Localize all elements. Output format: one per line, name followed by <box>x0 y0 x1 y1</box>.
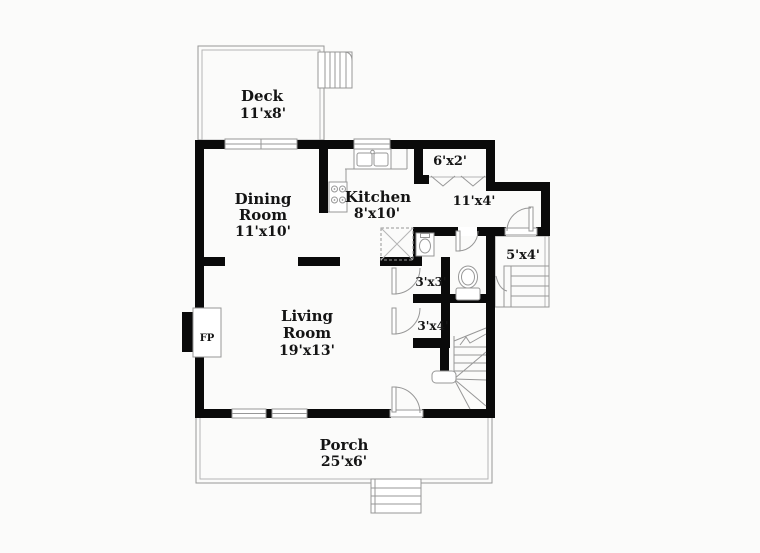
wall-right-lower <box>486 227 495 418</box>
closet-b-door-leaf <box>392 308 396 334</box>
pantry-closet-label: 6'x2' <box>433 154 467 169</box>
svg-text:3'x3': 3'x3' <box>415 275 446 289</box>
wall-hall-top-jog <box>486 182 550 191</box>
bathroom-door-leaf <box>456 231 460 251</box>
window-living-1 <box>232 409 266 418</box>
porch-label: Porch <box>320 436 369 454</box>
svg-text:8'x10': 8'x10' <box>354 206 400 222</box>
window-kitchen <box>354 139 390 149</box>
closet-a-door-leaf <box>392 268 396 294</box>
deck-label: Deck <box>241 87 284 105</box>
floor-plan: Deck 11'x8' Porch 25'x6' 5'x4' <box>0 0 760 553</box>
svg-text:Kitchen: Kitchen <box>345 188 411 206</box>
stoop-dims: 5'x4' <box>506 248 540 263</box>
porch-steps <box>371 479 421 513</box>
svg-text:11'x4': 11'x4' <box>453 194 496 209</box>
wall-divider-left <box>195 257 225 266</box>
window-dining-deck <box>225 139 297 149</box>
stairs-newel <box>432 371 456 383</box>
toilet-icon <box>456 266 480 300</box>
front-door-leaf <box>392 387 396 412</box>
living-room-label: Living Room 19'x13' <box>279 307 335 359</box>
wall-left <box>195 140 204 418</box>
deck-dims: 11'x8' <box>240 106 286 122</box>
svg-text:11'x10': 11'x10' <box>235 224 291 240</box>
floor-plan-drawing: Deck 11'x8' Porch 25'x6' 5'x4' <box>0 0 760 553</box>
closet-b-label: 3'x4' <box>417 319 448 333</box>
hallway-label: 11'x4' <box>453 194 496 209</box>
dining-room-label: Dining Room 11'x10' <box>235 190 292 240</box>
wall-divider-mid <box>298 257 340 266</box>
svg-text:3'x4': 3'x4' <box>417 319 448 333</box>
wall-bifold-jamb <box>414 175 429 184</box>
window-living-2 <box>272 409 307 418</box>
svg-text:19'x13': 19'x13' <box>279 343 335 359</box>
deck-stairs <box>318 52 352 88</box>
kitchen-sink-icon <box>354 149 391 169</box>
background <box>0 0 760 553</box>
svg-text:Living: Living <box>281 307 334 325</box>
wall-divider-right <box>380 257 422 266</box>
hall-door-leaf <box>529 207 533 231</box>
svg-text:6'x2': 6'x2' <box>433 154 467 169</box>
wall-bath-bottom <box>413 294 495 303</box>
fireplace-label: FP <box>200 333 215 344</box>
svg-text:Room: Room <box>239 206 287 224</box>
bathroom-sink-icon <box>416 233 434 256</box>
svg-text:Room: Room <box>283 324 331 342</box>
fireplace: FP <box>193 308 221 357</box>
closet-a-label: 3'x3' <box>415 275 446 289</box>
wall-hall-bottom-corner <box>536 227 550 236</box>
wall-kitchen-dining <box>319 149 328 213</box>
porch-dims: 25'x6' <box>321 454 367 470</box>
